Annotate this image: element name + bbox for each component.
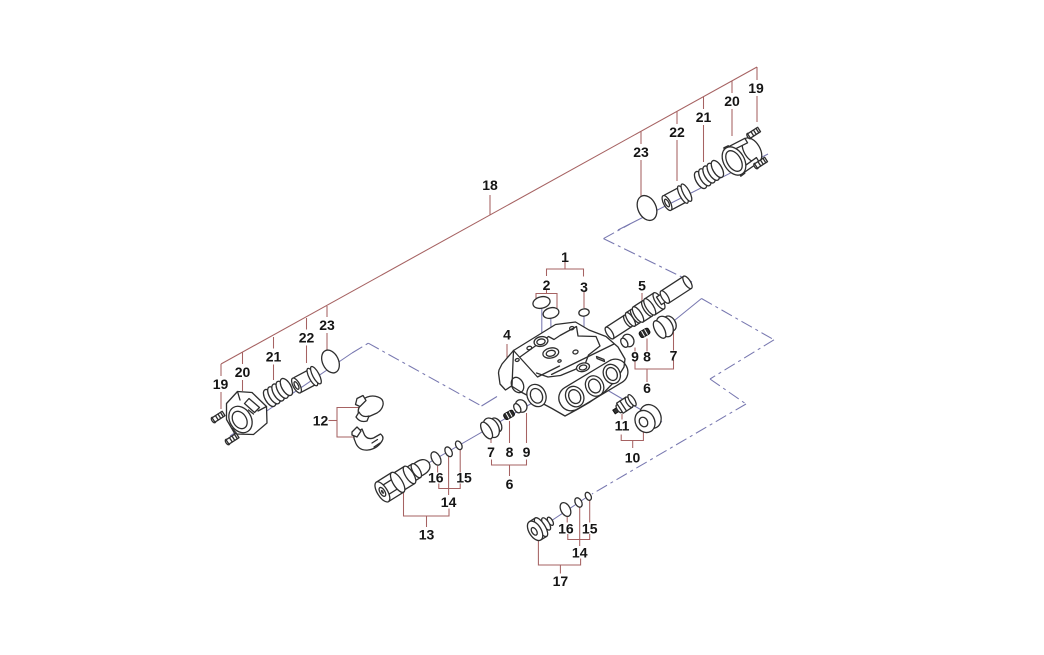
svg-text:15: 15 [456,470,472,486]
svg-text:7: 7 [487,444,495,460]
svg-text:14: 14 [572,545,588,561]
svg-text:17: 17 [553,573,569,589]
svg-text:6: 6 [643,380,651,396]
svg-text:11: 11 [615,418,630,434]
svg-text:2: 2 [543,277,551,293]
svg-text:6: 6 [506,476,514,492]
svg-text:22: 22 [669,124,685,140]
svg-text:16: 16 [558,521,574,537]
svg-text:13: 13 [419,527,435,543]
svg-text:23: 23 [319,317,335,333]
svg-text:5: 5 [638,278,646,294]
svg-text:8: 8 [506,444,514,460]
svg-text:20: 20 [235,364,251,380]
svg-text:9: 9 [631,349,639,365]
svg-text:15: 15 [582,521,598,537]
svg-text:18: 18 [482,177,498,193]
svg-text:21: 21 [266,349,282,365]
svg-text:1: 1 [561,249,569,265]
svg-text:16: 16 [428,470,444,486]
svg-text:23: 23 [633,144,649,160]
svg-text:3: 3 [580,279,588,295]
svg-text:14: 14 [441,494,457,510]
svg-text:12: 12 [313,413,329,429]
svg-text:7: 7 [670,348,678,364]
svg-text:20: 20 [724,93,740,109]
svg-text:19: 19 [748,80,764,96]
svg-text:19: 19 [213,376,229,392]
svg-text:21: 21 [696,109,712,125]
svg-text:10: 10 [625,450,641,466]
svg-text:8: 8 [643,349,651,365]
svg-text:4: 4 [503,327,511,343]
svg-text:22: 22 [299,330,315,346]
svg-text:9: 9 [523,444,531,460]
